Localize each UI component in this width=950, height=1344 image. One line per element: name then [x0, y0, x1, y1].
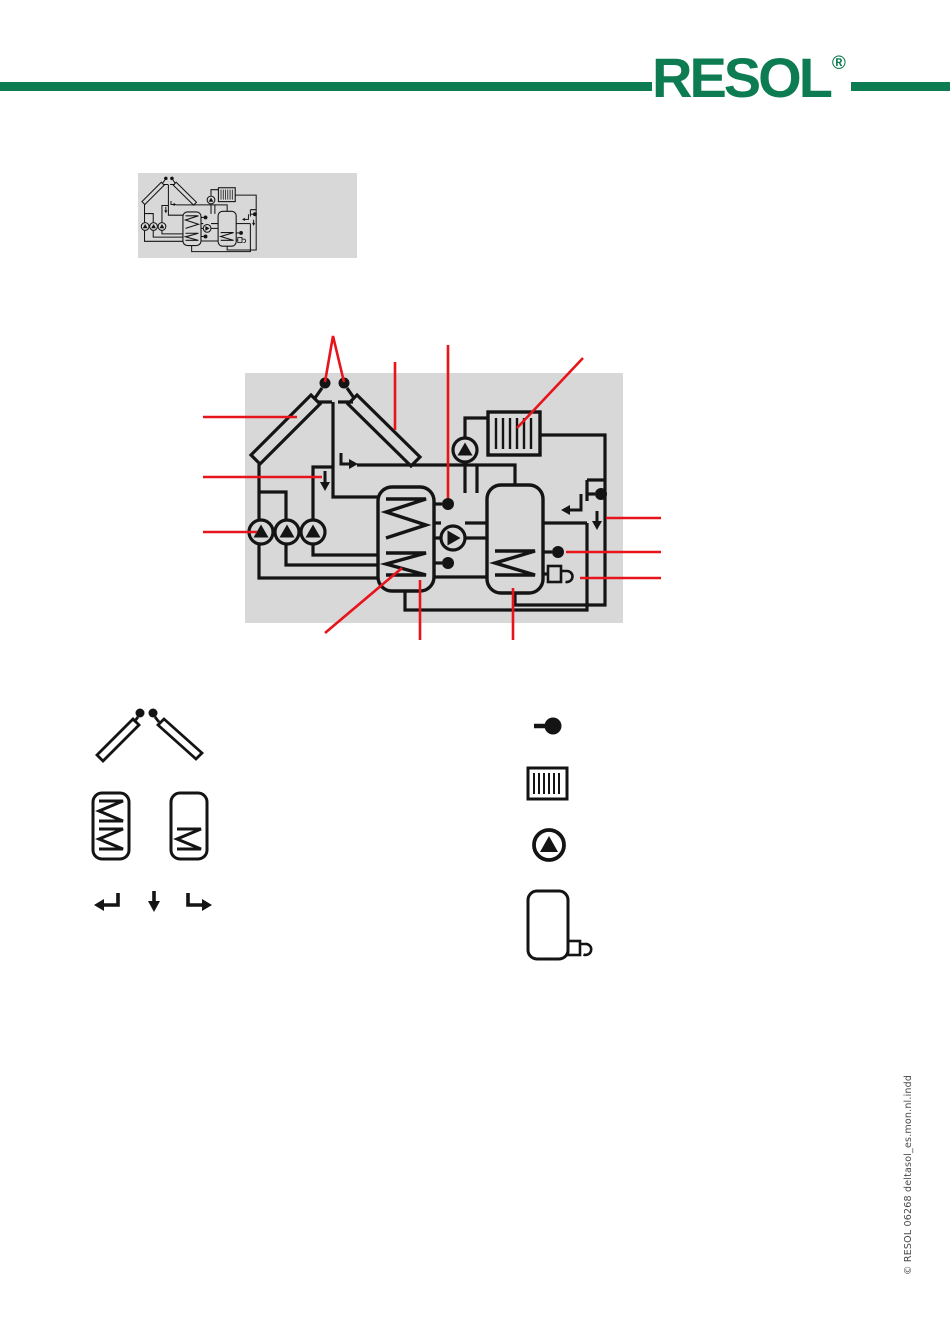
registered-mark: ®	[832, 53, 846, 74]
legend-pump-icon	[529, 826, 569, 866]
resol-logo: RESOL®	[652, 34, 852, 98]
legend-return-arrow-icon	[102, 893, 118, 905]
legend-radiator-icon	[524, 766, 570, 802]
legend-collector-pair-icon	[95, 703, 207, 765]
system-scheme-thumbnail	[138, 173, 357, 258]
header-rule-right	[851, 82, 950, 91]
header-rule-left	[0, 82, 652, 91]
legend-sensor-icon	[530, 711, 570, 741]
document-page: RESOL®	[0, 0, 950, 1344]
logo-text: RESOL	[652, 46, 830, 109]
legend-tank-valve-icon	[524, 886, 600, 964]
solar-system-scheme	[203, 330, 665, 645]
imprint: © RESOL 06268 deltasol_es.mon.nl.indd	[901, 1105, 921, 1275]
legend-branch-arrow-icon	[188, 893, 204, 905]
legend-arrows	[92, 888, 216, 916]
imprint-text: © RESOL 06268 deltasol_es.mon.nl.indd	[903, 1075, 914, 1275]
legend-tanks-icon	[90, 789, 210, 865]
